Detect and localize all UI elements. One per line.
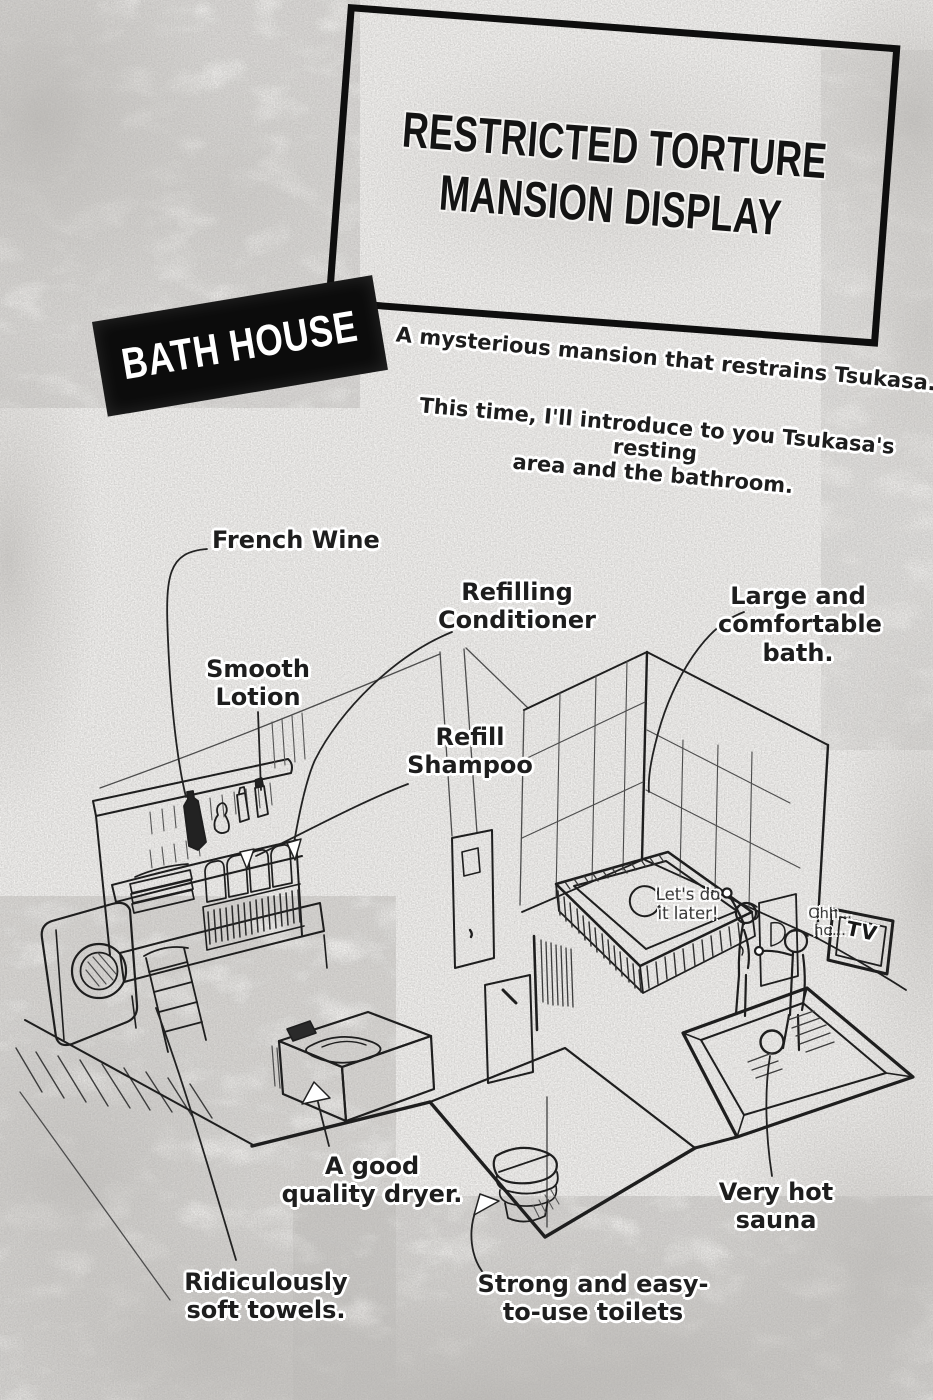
annotation-very-hot-sauna: Very hot sauna <box>696 1178 856 1235</box>
manga-page: RESTRICTED TORTURE MANSION DISPLAY BATH … <box>0 0 933 1400</box>
male-hand <box>755 947 763 955</box>
annotation-french-wine: French Wine <box>212 526 380 554</box>
display-board-title: RESTRICTED TORTURE MANSION DISPLAY <box>318 94 908 257</box>
annotation-good-dryer: A good quality dryer. <box>272 1152 472 1209</box>
annotation-large-bath: Large and comfortable bath. <box>718 582 878 667</box>
annotation-strong-toilets: Strong and easy- to-use toilets <box>468 1270 718 1327</box>
display-board: RESTRICTED TORTURE MANSION DISPLAY <box>325 4 900 347</box>
annotation-refilling-conditioner: Refilling Conditioner <box>432 578 602 635</box>
section-tag-label: BATH HOUSE <box>118 302 361 391</box>
annotation-refill-shampoo: Refill Shampoo <box>395 723 545 780</box>
annotation-smooth-lotion: Smooth Lotion <box>193 655 323 712</box>
annotation-soft-towels: Ridiculously soft towels. <box>166 1268 366 1325</box>
speech-lets-do-it-later: Let's do it later! <box>638 886 738 924</box>
